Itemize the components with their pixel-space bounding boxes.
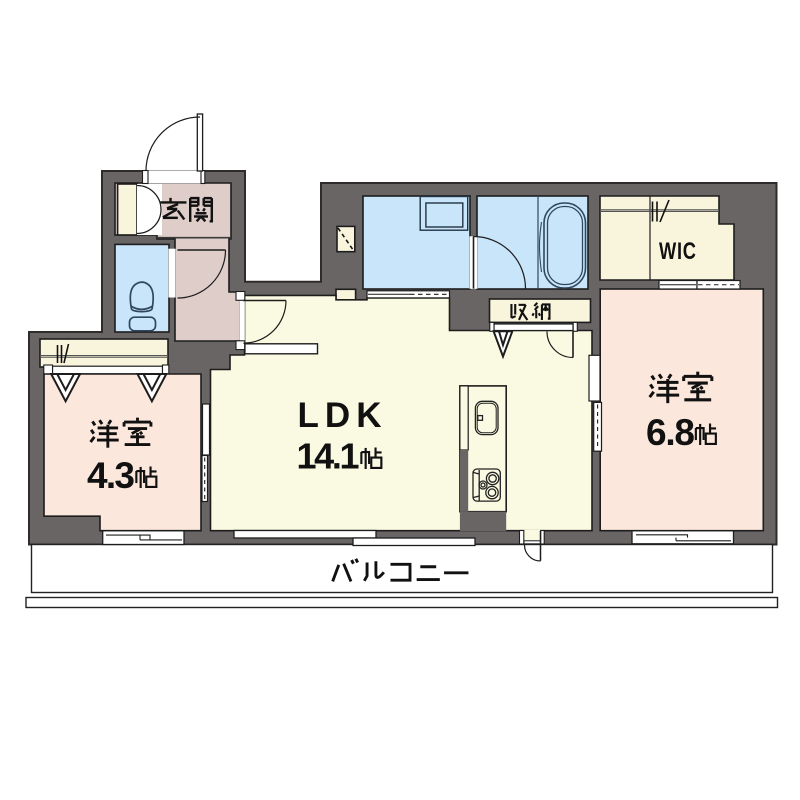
svg-text:WIC: WIC xyxy=(659,238,697,265)
svg-text:4.3: 4.3 xyxy=(87,455,135,496)
svg-text:14.1: 14.1 xyxy=(297,436,360,477)
svg-text:6.8: 6.8 xyxy=(646,412,695,453)
svg-text:LDK: LDK xyxy=(298,396,382,435)
